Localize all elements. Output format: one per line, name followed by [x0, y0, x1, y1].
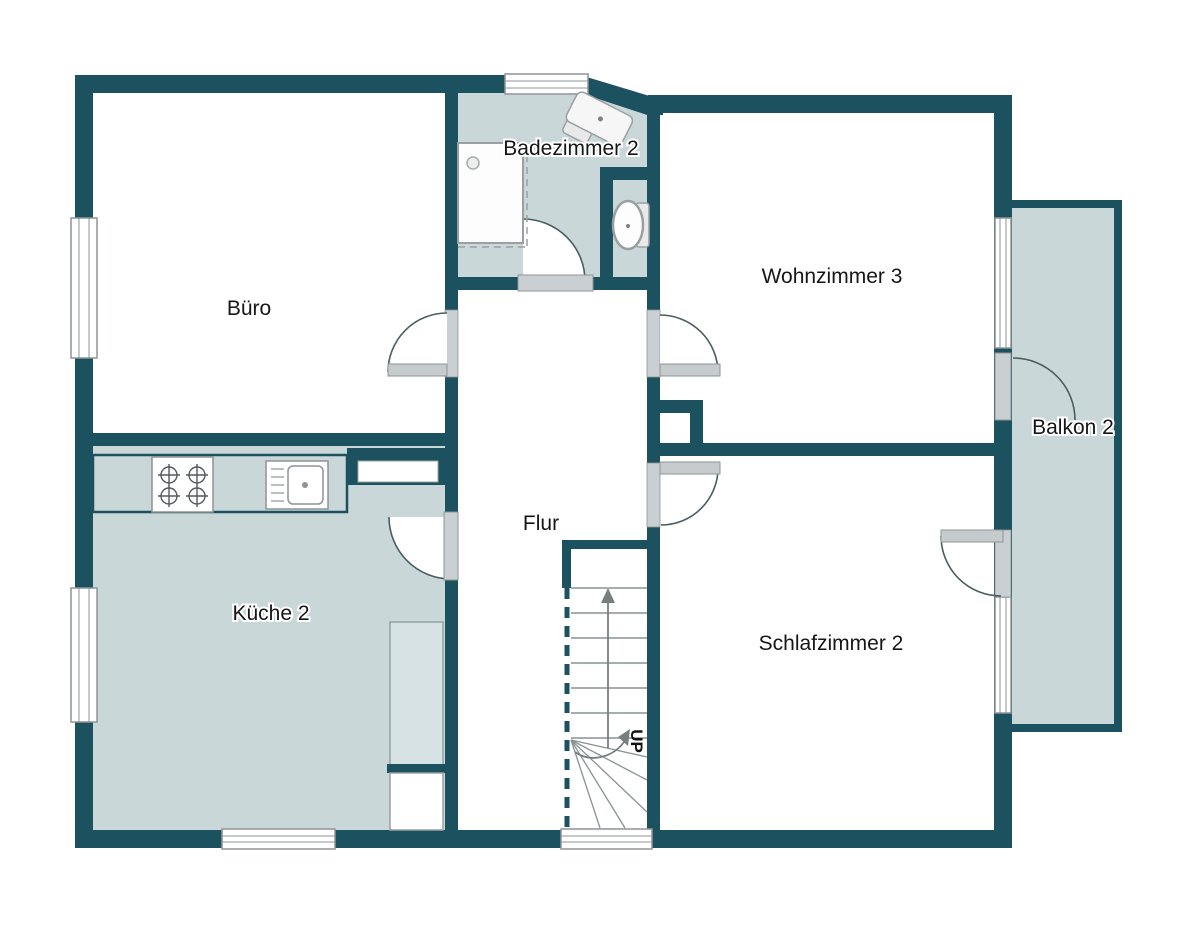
wall-outer-bottom [75, 830, 1012, 848]
wall-balkon-top [1012, 200, 1122, 208]
room-label-badezimmer: Badezimmer 2 [503, 137, 638, 160]
wall-stair-landing-top [562, 540, 650, 549]
toilet-icon [613, 201, 649, 249]
window-buero-left-icon [71, 218, 97, 358]
window-wohnzimmer-right-icon [995, 218, 1011, 348]
window-kueche-bottom-icon [222, 829, 335, 849]
stove-icon [152, 457, 213, 512]
room-balkon-floor [1012, 208, 1114, 724]
window-stairs-bottom-icon [561, 829, 652, 849]
kitchen-cabinet-divider [387, 764, 445, 773]
room-label-schlafzimmer: Schlafzimmer 2 [759, 632, 904, 655]
room-label-wohnzimmer: Wohnzimmer 3 [762, 265, 903, 288]
room-label-buero: Büro [227, 297, 271, 320]
kitchen-sink-icon [266, 461, 328, 509]
wall-wc-niche-left [600, 180, 613, 277]
wall-bad-bottom-left [445, 277, 518, 290]
wall-wc-niche-top [600, 167, 647, 180]
wall-shaft-right [690, 413, 703, 443]
wall-outer-right [994, 95, 1012, 848]
kitchen-cabinet [390, 622, 443, 766]
wall-outer-left [75, 75, 93, 848]
wall-flur-right-lower [647, 527, 660, 830]
wall-kueche-right-lower [445, 578, 458, 830]
window-kueche-left-icon [71, 588, 97, 722]
floorplan-drawing: UP Büro Badezimmer 2 Wohnzimmer 3 Balkon… [0, 0, 1200, 925]
wall-balkon-right [1114, 200, 1122, 732]
room-buero-floor [93, 93, 445, 433]
window-bad-top-icon [505, 74, 588, 94]
wall-stair-landing-left [562, 540, 571, 588]
wall-room-divider [650, 443, 1012, 456]
wall-outer-top-right [648, 95, 1012, 113]
kitchen-appliance-icon [390, 773, 443, 830]
kitchen-pass-through [358, 461, 438, 482]
up-label: UP [627, 729, 646, 753]
room-label-kueche: Küche 2 [232, 602, 309, 625]
floorplan-canvas: UP Büro Badezimmer 2 Wohnzimmer 3 Balkon… [0, 0, 1200, 925]
wall-shaft-top [660, 400, 703, 413]
room-label-balkon: Balkon 2 [1032, 416, 1114, 439]
room-label-flur: Flur [523, 512, 559, 535]
wall-balkon-bottom [1012, 724, 1122, 732]
window-schlafzimmer-right-icon [995, 597, 1011, 713]
wall-buero-bottom [75, 433, 458, 446]
